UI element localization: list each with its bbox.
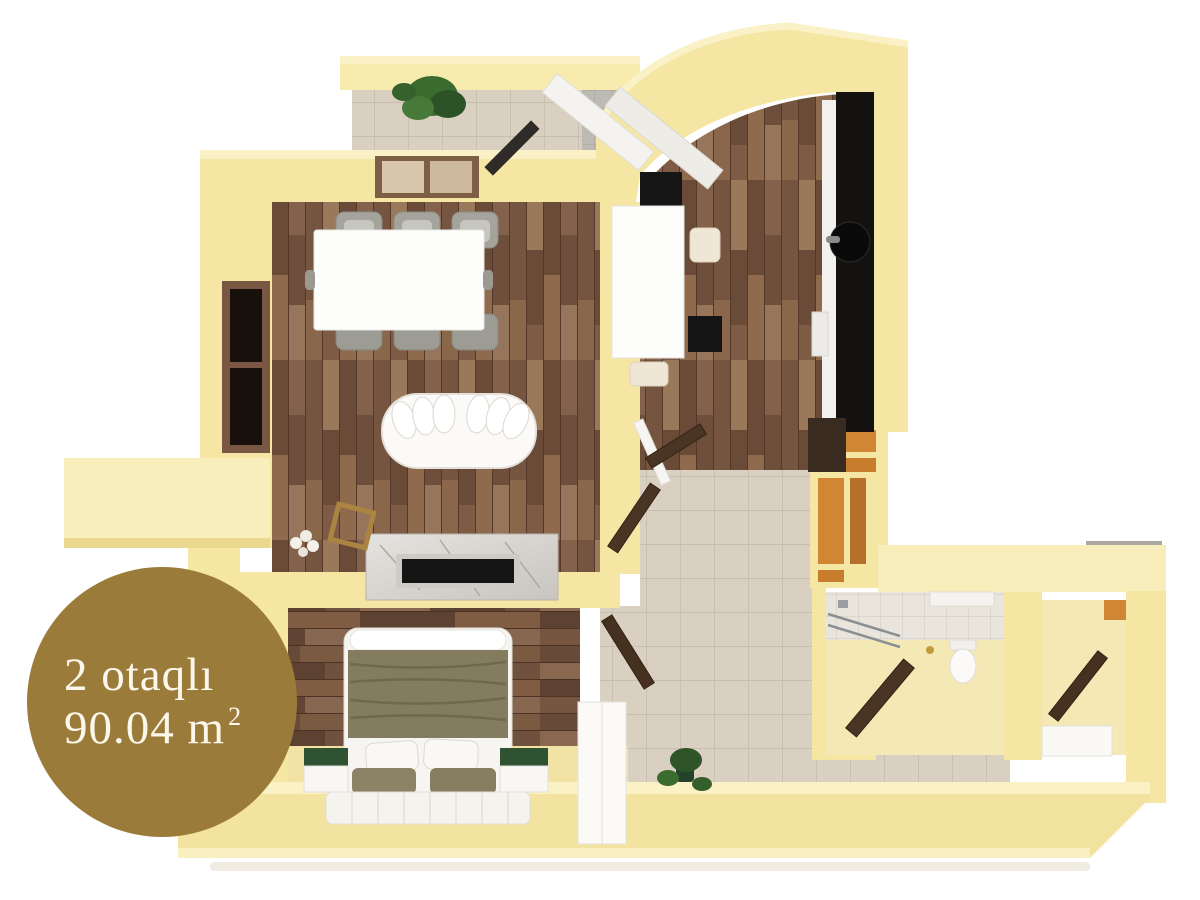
kitchen-right-wall — [872, 88, 908, 432]
flower — [298, 547, 308, 557]
counter-white-edge — [822, 100, 836, 426]
floorplan-page: 2 otaqlı 90.04 m2 — [0, 0, 1200, 900]
balcony-top-wall-lip — [340, 56, 640, 64]
plant-foliage — [392, 83, 416, 101]
badge-area-superscript: 2 — [228, 702, 242, 731]
tv-screen — [402, 559, 514, 583]
kitchen-stool — [690, 228, 720, 262]
area-badge: 2 otaqlı 90.04 m2 — [27, 567, 297, 837]
badge-rooms-label: 2 otaqlı — [64, 649, 297, 702]
left-wall-wing-edge — [64, 538, 270, 548]
sofa-pillow — [433, 395, 455, 433]
plant-foliage — [430, 90, 466, 118]
shower-head — [838, 600, 848, 608]
storage-shelf — [1042, 726, 1112, 756]
balcony-door-pane — [430, 161, 472, 193]
bottom-wall-band — [178, 782, 1150, 871]
kitchen-black-table — [688, 316, 722, 352]
wall-niche — [818, 570, 844, 582]
wall-niche — [846, 430, 876, 452]
table-end-handle — [483, 270, 493, 290]
bathroom-floor — [826, 640, 1004, 755]
bed-pillow-khaki — [352, 768, 416, 794]
kitchen-tall-cabinet — [612, 206, 684, 358]
storage-niche — [1104, 600, 1126, 620]
plant-foliage — [670, 748, 702, 772]
plant-foliage — [692, 777, 712, 791]
bed-blanket — [348, 650, 508, 738]
gold-faucet — [926, 646, 934, 654]
badge-area-label: 90.04 m2 — [64, 702, 297, 755]
flower — [290, 537, 302, 549]
wall-niche — [818, 478, 844, 564]
left-wall-wing — [64, 458, 270, 548]
balcony-door-pane — [382, 161, 424, 193]
wall-niche — [846, 458, 876, 472]
bed-headboard — [326, 792, 530, 824]
toilet-bowl — [950, 649, 976, 683]
table-end-handle — [305, 270, 315, 290]
kitchen-brown-cabinet — [808, 418, 846, 472]
window-mullion — [228, 362, 266, 368]
nightstand-drawer — [500, 766, 548, 792]
bottom-shadow — [210, 862, 1090, 871]
faucet — [826, 236, 840, 243]
wall-niche — [850, 478, 866, 564]
duvet-roll — [350, 630, 506, 650]
bath-divider-wall — [1004, 592, 1042, 760]
bed-pillow-white — [423, 739, 478, 772]
kitchen-counter-black — [836, 92, 874, 432]
flower — [307, 540, 319, 552]
nightstand-drawer — [304, 766, 348, 792]
bath-vanity — [930, 592, 994, 606]
dining-table — [314, 230, 484, 330]
kitchen-black-cabinet — [640, 172, 682, 206]
plant-foliage — [657, 770, 679, 786]
bath-block-top-band — [878, 545, 1166, 592]
flower — [300, 530, 312, 542]
bath-right-wall — [1126, 591, 1166, 803]
bottom-band-base — [178, 848, 1090, 858]
bed-pillow-khaki — [430, 768, 496, 794]
kitchen-stool — [630, 362, 668, 386]
oven-front — [812, 312, 828, 356]
